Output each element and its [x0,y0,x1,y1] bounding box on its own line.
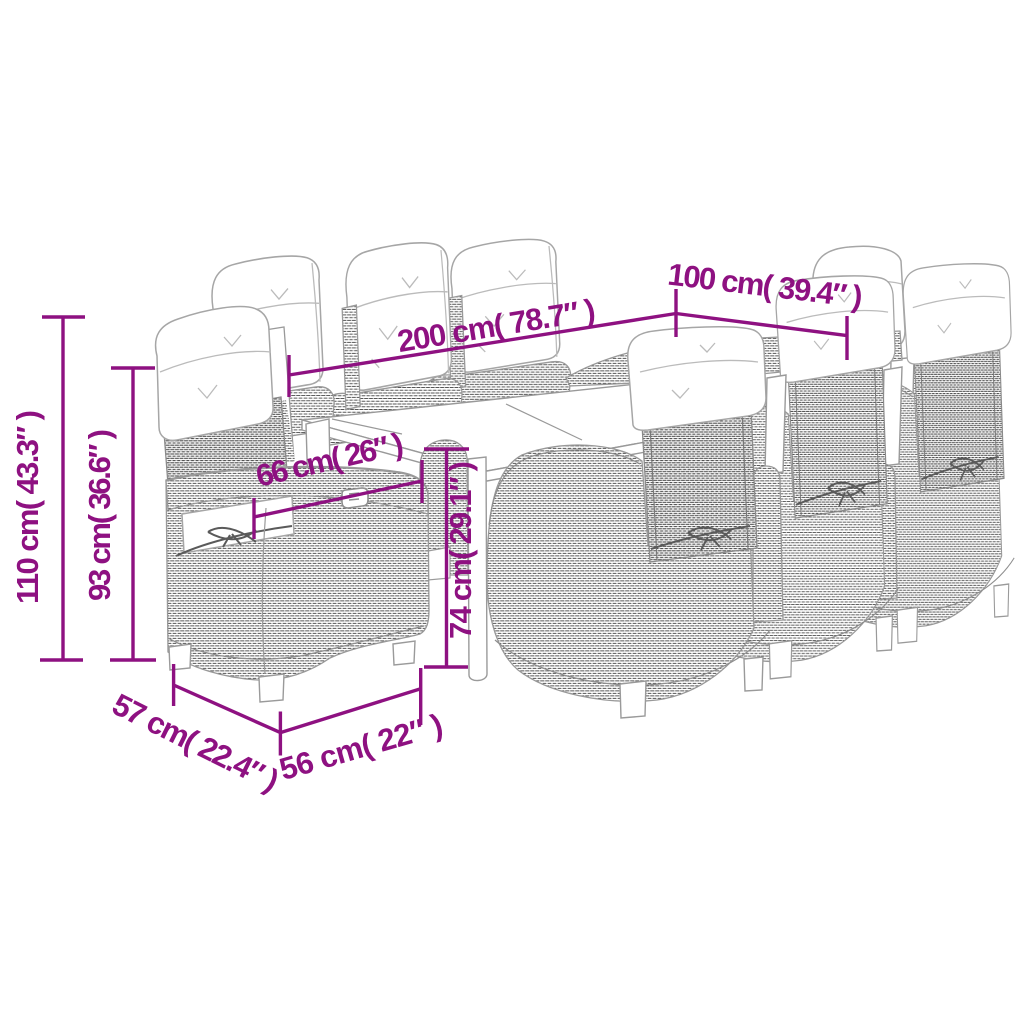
svg-text:110 cm( 43.3″ ): 110 cm( 43.3″ ) [10,410,45,604]
svg-text:57 cm( 22.4″ ): 57 cm( 22.4″ ) [107,687,285,799]
svg-text:93 cm( 36.6″ ): 93 cm( 36.6″ ) [82,429,117,601]
svg-text:74 cm( 29.1″ ): 74 cm( 29.1″ ) [443,461,478,639]
svg-text:56 cm( 22″ ): 56 cm( 22″ ) [276,707,447,787]
